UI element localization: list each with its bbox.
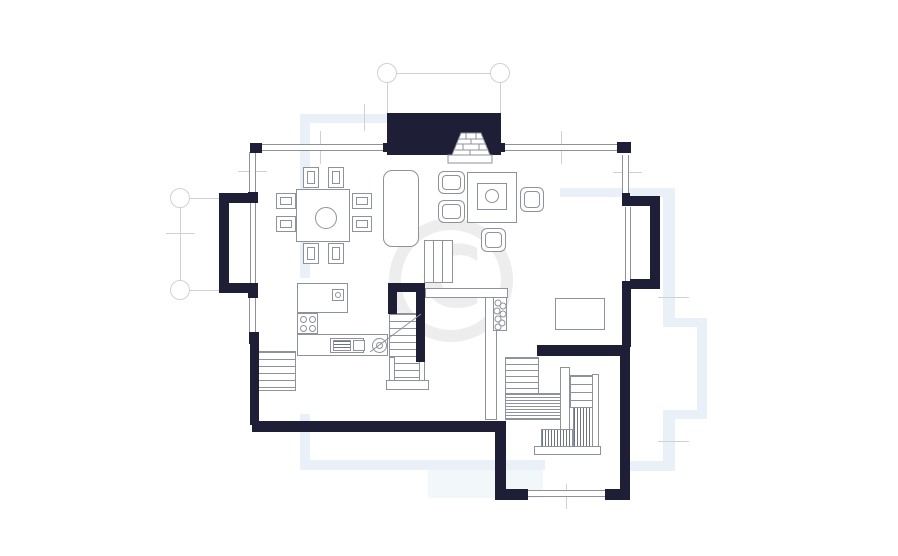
- fireplace-hearth: [448, 155, 492, 163]
- stair-direction-line: [370, 314, 421, 352]
- glass-divider-dot: [495, 324, 501, 330]
- vector-details: [0, 0, 898, 556]
- glass-divider-dot: [500, 303, 506, 309]
- floor-plan-canvas: C: [0, 0, 898, 556]
- glass-divider-dot: [500, 311, 506, 317]
- glass-divider-dot: [494, 308, 500, 314]
